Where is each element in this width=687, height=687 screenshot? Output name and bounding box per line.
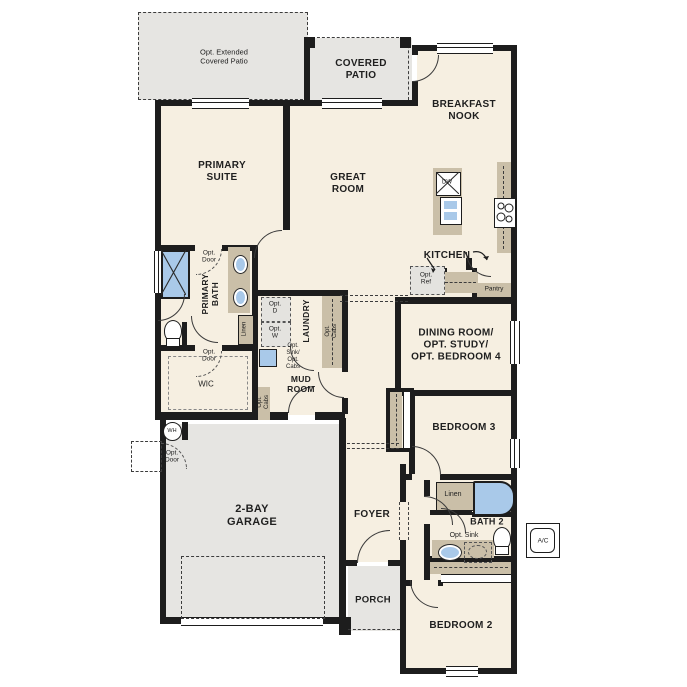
patio-top-dashed-edge (312, 37, 404, 38)
laundry-sink-icon (259, 349, 277, 367)
room-label-kitchen: KITCHEN (424, 250, 471, 262)
room-label-breakfast-nook: BREAKFAST NOOK (432, 99, 496, 123)
wall (424, 480, 430, 496)
ceiling-break (347, 443, 399, 444)
sink-icon (233, 255, 248, 274)
ceiling-break (340, 301, 408, 302)
wall (182, 322, 187, 347)
opt-door-label: Opt. Door (165, 450, 179, 465)
wall (395, 297, 401, 390)
wall (342, 296, 348, 372)
patio-right-dashed-edge (408, 40, 409, 100)
counter-dashed-line (445, 282, 476, 283)
window (446, 666, 478, 677)
garage-door-dashed-zone (181, 556, 325, 619)
bedroom2-closet-slider (441, 574, 511, 583)
water-heater-label: WH (167, 428, 176, 434)
patio-left-wall (304, 44, 310, 100)
opt-sink-label: Opt. Sink (450, 532, 479, 540)
closet-dashed-line (396, 394, 397, 446)
ac-unit: A/C (526, 523, 560, 558)
opt-door-label: Opt. Door (202, 250, 216, 265)
bedroom3-closet-slider (403, 392, 411, 448)
opt-dryer-label: Opt. D (269, 301, 281, 316)
wall (182, 422, 188, 440)
ceiling-break (340, 295, 408, 296)
dishwasher-label: DW (442, 180, 452, 187)
linen-label: Linen (444, 491, 461, 499)
room-label-opt-extended-patio: Opt. Extended Covered Patio (200, 48, 248, 65)
opt-door-dashed-zone (131, 441, 162, 472)
toilet-icon (495, 546, 509, 555)
shower-icon (161, 250, 190, 299)
kitchen-sink-icon (440, 197, 462, 225)
closet-dashed-line (434, 567, 508, 568)
wall (388, 560, 406, 566)
opt-door-label: Opt. Door (202, 349, 216, 364)
opt-cabs-label: Opt. Cabs (325, 324, 339, 338)
room-label-porch: PORCH (355, 594, 391, 605)
sink-icon (233, 288, 248, 307)
wall (315, 412, 345, 420)
opt-washer-label: Opt. W (269, 326, 281, 341)
room-label-dining: DINING ROOM/ OPT. STUDY/ OPT. BEDROOM 4 (411, 327, 501, 362)
room-label-great-room: GREAT ROOM (330, 172, 366, 196)
foyer-opening-dashed (399, 502, 409, 540)
room-label-covered-patio: COVERED PATIO (335, 58, 387, 82)
opt-sink-dashed-icon (464, 542, 492, 563)
wall (283, 100, 290, 230)
floor-plan: A/C Opt. Extended Covered Patio COVERED … (0, 0, 687, 687)
bathtub-icon (473, 481, 515, 516)
opt-cabs-label: Opt. Cabs (257, 395, 271, 409)
wall (395, 297, 517, 304)
opt-ref-label: Opt. Ref (420, 272, 432, 287)
wall (339, 617, 351, 635)
room-label-bedroom-2: BEDROOM 2 (429, 620, 492, 632)
ac-label: A/C (538, 537, 549, 544)
room-label-mud-room: MUD ROOM (287, 374, 315, 394)
window (510, 321, 520, 364)
window (510, 439, 520, 468)
opt-sink-cabs-label: Opt. Sink/ Opt. Cabs (286, 343, 300, 371)
wall (339, 418, 346, 633)
window (437, 43, 493, 54)
bedroom2-closet-shelf (430, 562, 511, 574)
room-label-foyer: FOYER (354, 509, 390, 521)
cooktop-icon (494, 198, 516, 228)
pantry-label: Pantry (485, 285, 504, 292)
room-label-wic: WIC (198, 379, 214, 388)
sink-icon (438, 544, 462, 561)
room-label-primary-suite: PRIMARY SUITE (198, 160, 246, 184)
window (322, 98, 382, 109)
wall (412, 81, 418, 106)
wall (440, 474, 511, 480)
room-label-laundry: LAUNDRY (301, 299, 311, 342)
porch-edge-dashed (348, 629, 400, 630)
wall (345, 560, 357, 566)
room-label-bath-2: BATH 2 (470, 517, 504, 528)
room-label-primary-bath: PRIMARY BATH (200, 274, 220, 315)
window (192, 98, 249, 109)
room-label-bedroom-3: BEDROOM 3 (432, 422, 495, 434)
room-label-garage: 2-BAY GARAGE (227, 503, 277, 529)
ceiling-break (347, 448, 399, 449)
toilet-icon (166, 338, 180, 347)
patio-post (400, 37, 411, 48)
wall (342, 398, 348, 414)
linen-label: Linen (242, 322, 249, 337)
